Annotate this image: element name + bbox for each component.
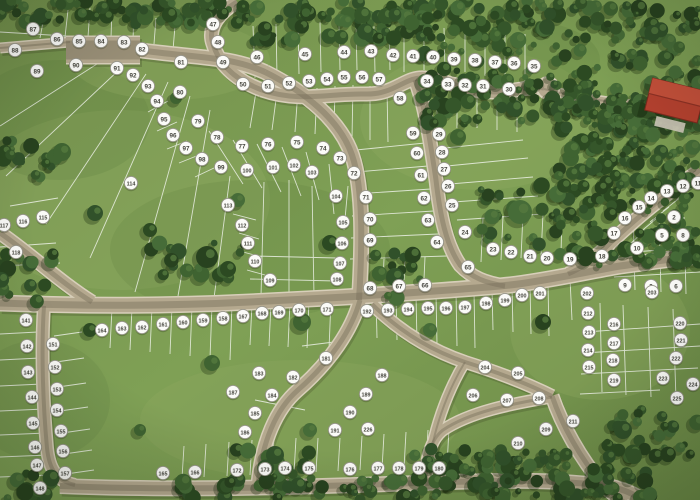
vignette (0, 0, 700, 500)
masterplan-map: 2581093611121314151617181920212223242526… (0, 0, 700, 500)
aerial-map-canvas: 2581093611121314151617181920212223242526… (0, 0, 700, 500)
